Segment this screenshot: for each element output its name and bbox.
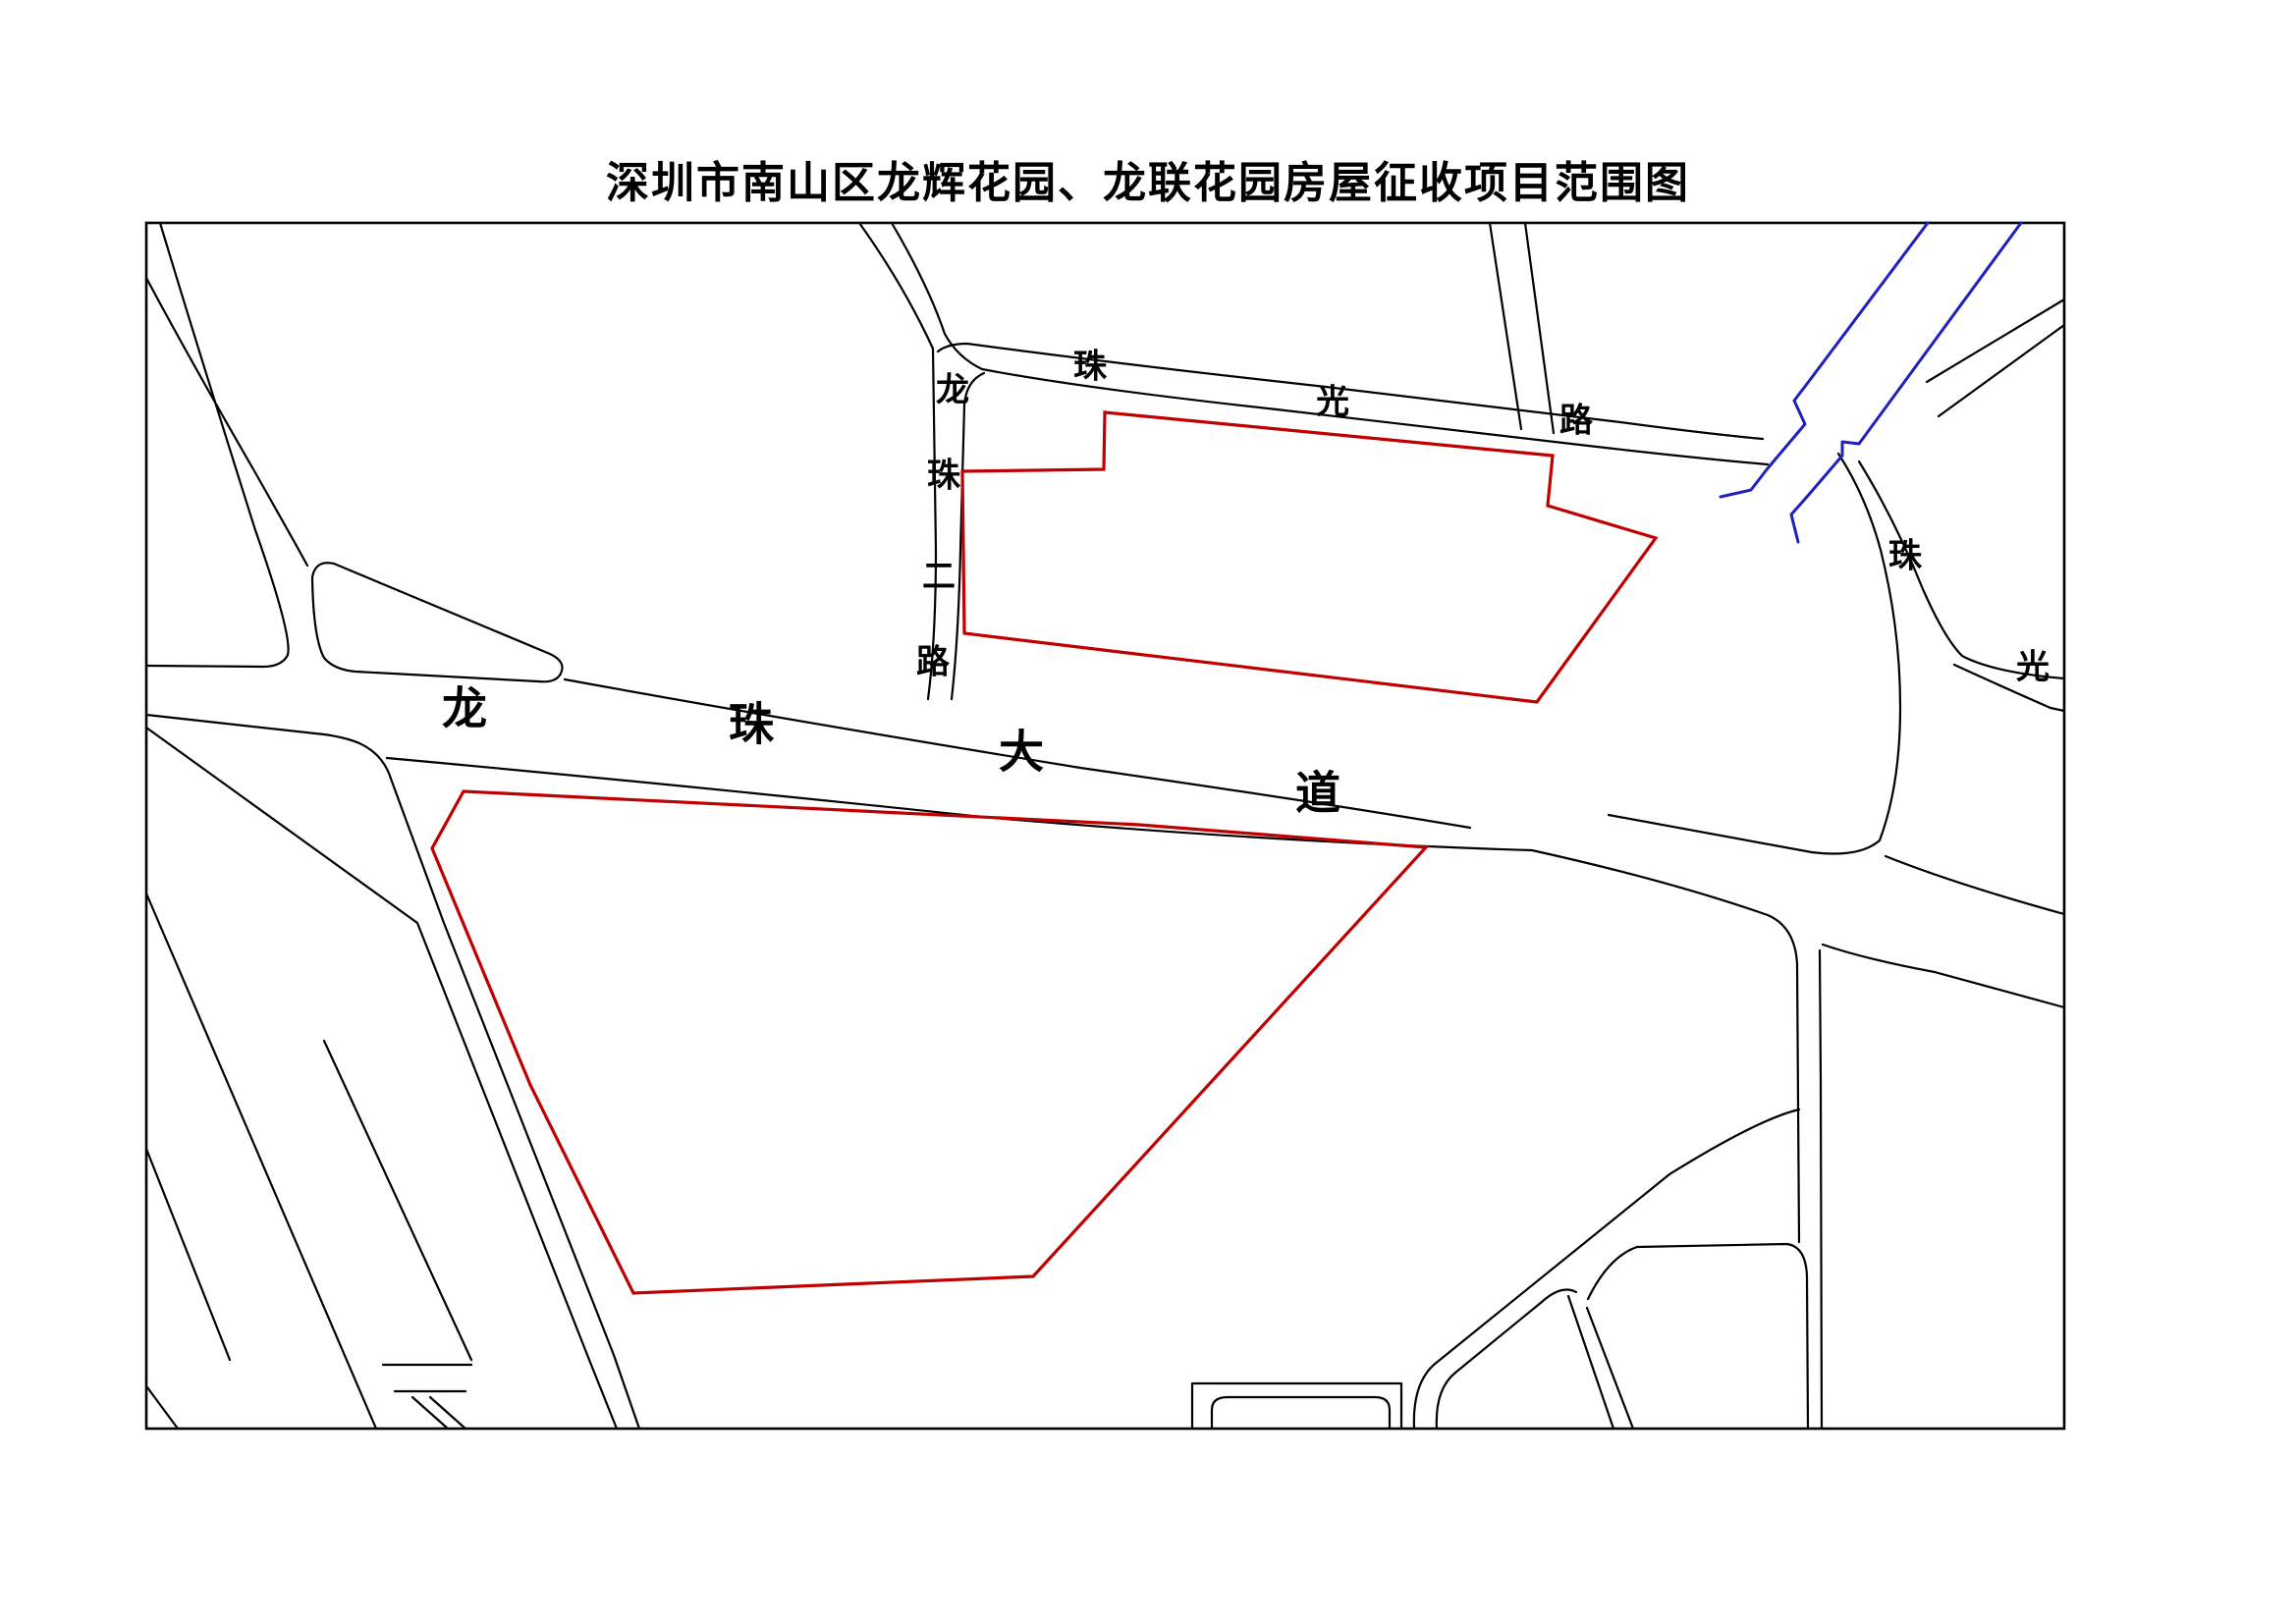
road-label-longzhu-avenue-1: 珠 [729, 700, 775, 750]
road-line [146, 715, 359, 743]
city-block [1212, 1397, 1390, 1429]
road-label-longzhu-2-road-3: 路 [916, 644, 951, 681]
map-border [146, 223, 2064, 1429]
road-network [146, 223, 2064, 1429]
road-labels: 龙珠大道珠光路龙珠二路珠光 [442, 349, 2050, 819]
road-line [146, 223, 289, 667]
road-line [324, 1041, 471, 1360]
road-label-longzhu-2-road-1: 珠 [927, 458, 961, 495]
road-line [892, 223, 1768, 464]
water-channel [1721, 223, 2021, 542]
road-label-zhuguang-road-top-0: 珠 [1073, 349, 1108, 386]
road-line [1939, 325, 2064, 416]
scope-polygon-north [962, 412, 1656, 702]
junction-island [312, 563, 563, 681]
road-line [859, 223, 936, 699]
city-block [1192, 1383, 1401, 1429]
road-line [1490, 223, 1521, 429]
road-line [1609, 454, 1900, 854]
road-line [1437, 1290, 1576, 1429]
road-line [430, 1397, 465, 1429]
road-label-longzhu-avenue-3: 道 [1295, 769, 1340, 819]
road-line [1820, 950, 1822, 1429]
road-line [146, 893, 376, 1429]
road-line [146, 278, 307, 566]
road-line [412, 1397, 448, 1429]
road-label-zhuguang-road-top-2: 路 [1559, 403, 1594, 440]
road-line [1886, 856, 2064, 914]
road-label-longzhu-avenue-0: 龙 [442, 684, 487, 734]
road-label-zhuguang-road-east-0: 珠 [1888, 538, 1923, 575]
road-line [938, 344, 1763, 439]
scope-map-canvas: 龙珠大道珠光路龙珠二路珠光 [0, 0, 2296, 1623]
road-line [359, 743, 639, 1429]
road-line [952, 373, 984, 699]
road-line [146, 728, 617, 1429]
road-line [1525, 223, 1554, 433]
scope-polygon-south [432, 791, 1426, 1293]
road-line [387, 758, 1799, 1242]
water-line-west [1721, 223, 1928, 497]
expropriation-scopes [432, 412, 1656, 1293]
road-label-longzhu-2-road-2: 二 [922, 560, 956, 596]
road-line [147, 1387, 178, 1429]
city-block [1588, 1244, 1808, 1429]
road-line [1823, 945, 2064, 1007]
road-label-longzhu-avenue-2: 大 [999, 728, 1044, 778]
road-label-zhuguang-road-top-1: 光 [1316, 384, 1349, 421]
road-label-longzhu-2-road-0: 龙 [936, 372, 969, 409]
road-label-zhuguang-road-east-1: 光 [2016, 649, 2050, 686]
road-line [146, 1149, 230, 1360]
